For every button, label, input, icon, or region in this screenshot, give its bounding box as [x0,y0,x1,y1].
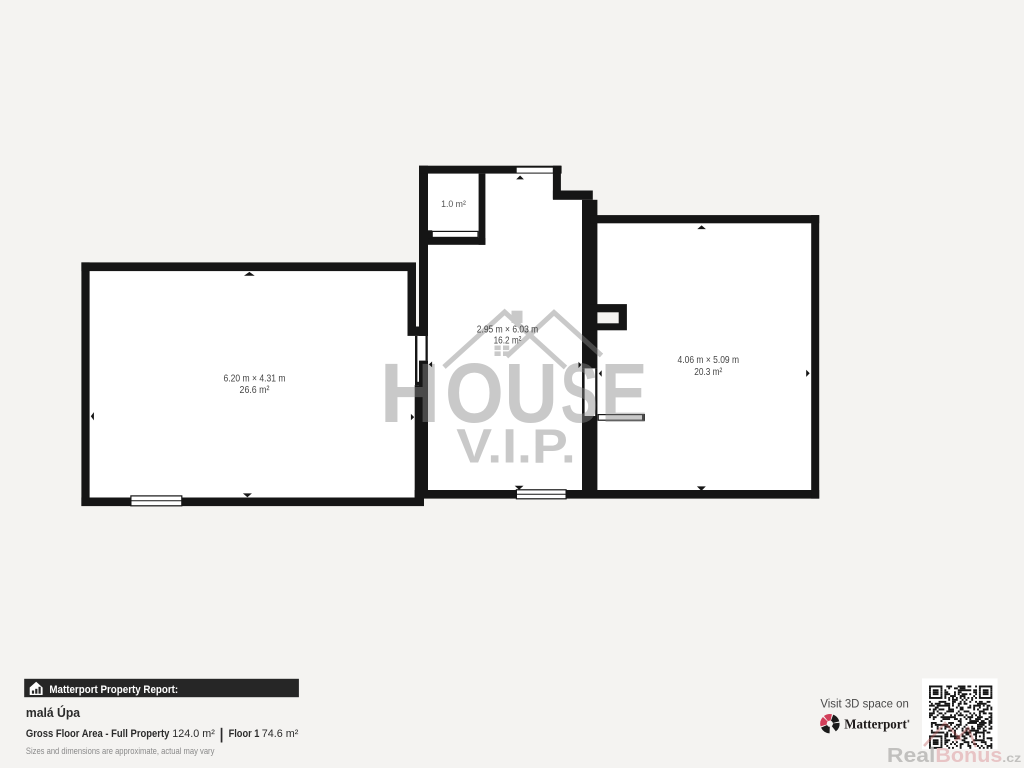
svg-text:Matterport: Matterport [844,718,907,733]
svg-text:Bonus: Bonus [935,745,1002,767]
svg-text:Gross Floor Area - Full Proper: Gross Floor Area - Full Property [26,728,170,740]
svg-text:2.95 m × 6.03 m: 2.95 m × 6.03 m [477,324,539,335]
svg-text:74.6 m²: 74.6 m² [262,728,299,740]
svg-text:6.20 m × 4.31 m: 6.20 m × 4.31 m [224,373,286,384]
svg-text:4.06 m × 5.09 m: 4.06 m × 5.09 m [678,355,740,366]
svg-text:.cz: .cz [1002,753,1021,765]
svg-text:20.3 m²: 20.3 m² [694,367,722,378]
svg-text:Floor 1: Floor 1 [229,728,260,740]
svg-text:Sizes and dimensions are appro: Sizes and dimensions are approximate, ac… [26,746,215,757]
svg-text:Visit 3D space on: Visit 3D space on [820,699,908,711]
svg-text:Matterport Property Report:: Matterport Property Report: [49,684,178,696]
svg-text:malá Úpa: malá Úpa [26,705,81,720]
svg-text:Real: Real [887,745,936,767]
svg-text:V.I.P.: V.I.P. [456,420,576,474]
svg-text:16.2 m²: 16.2 m² [494,336,522,347]
svg-text:26.6 m²: 26.6 m² [240,385,270,396]
svg-text:H: H [380,346,441,440]
svg-text:1.0 m²: 1.0 m² [441,199,466,210]
svg-text:E: E [601,346,648,440]
svg-text:124.0 m²: 124.0 m² [172,728,215,740]
